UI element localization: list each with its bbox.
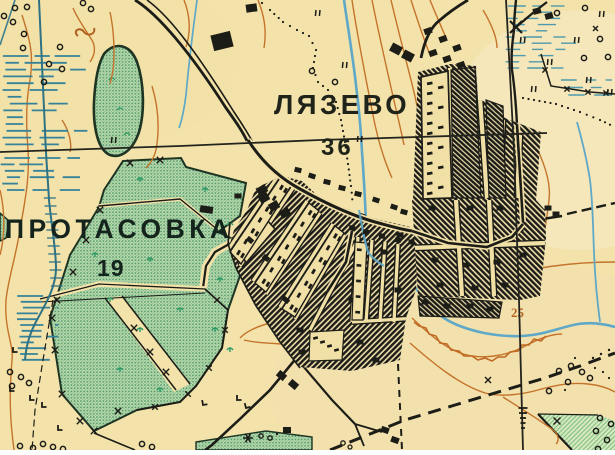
svg-text:ЛЯЗЕВО: ЛЯЗЕВО	[274, 89, 410, 120]
svg-text:19: 19	[97, 255, 125, 281]
svg-text:25: 25	[511, 305, 525, 320]
svg-text:ПРОТАСОВКА: ПРОТАСОВКА	[5, 214, 234, 244]
svg-text:36: 36	[321, 134, 354, 161]
